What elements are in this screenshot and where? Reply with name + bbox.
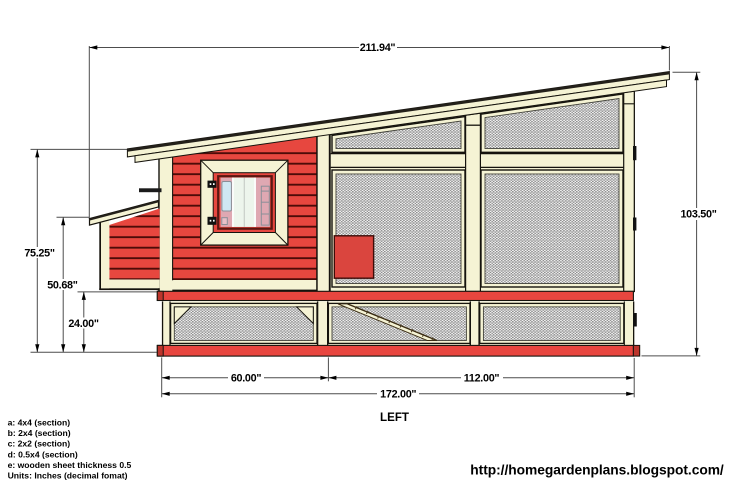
svg-text:24.00": 24.00" [68, 318, 99, 330]
svg-text:LEFT: LEFT [380, 411, 409, 424]
svg-text:http://homegardenplans.blogspo: http://homegardenplans.blogspot.com/ [470, 463, 724, 478]
svg-text:b: 2x4 (section): b: 2x4 (section) [8, 428, 71, 438]
svg-text:Units: Inches (decimal fomat): Units: Inches (decimal fomat) [8, 470, 128, 480]
svg-text:e: wooden sheet thickness 0.5: e: wooden sheet thickness 0.5 [8, 460, 132, 470]
svg-text:50.68": 50.68" [47, 279, 78, 291]
svg-text:103.50": 103.50" [680, 209, 716, 221]
svg-text:112.00": 112.00" [464, 372, 500, 384]
svg-text:c: 2x2 (section): c: 2x2 (section) [8, 439, 71, 449]
svg-text:60.00": 60.00" [231, 372, 262, 384]
svg-text:a: 4x4 (section): a: 4x4 (section) [8, 418, 71, 428]
svg-text:172.00": 172.00" [380, 388, 416, 400]
svg-text:211.94": 211.94" [360, 42, 396, 54]
svg-text:75.25": 75.25" [24, 247, 55, 259]
svg-text:d: 0.5x4 (section): d: 0.5x4 (section) [8, 449, 78, 459]
